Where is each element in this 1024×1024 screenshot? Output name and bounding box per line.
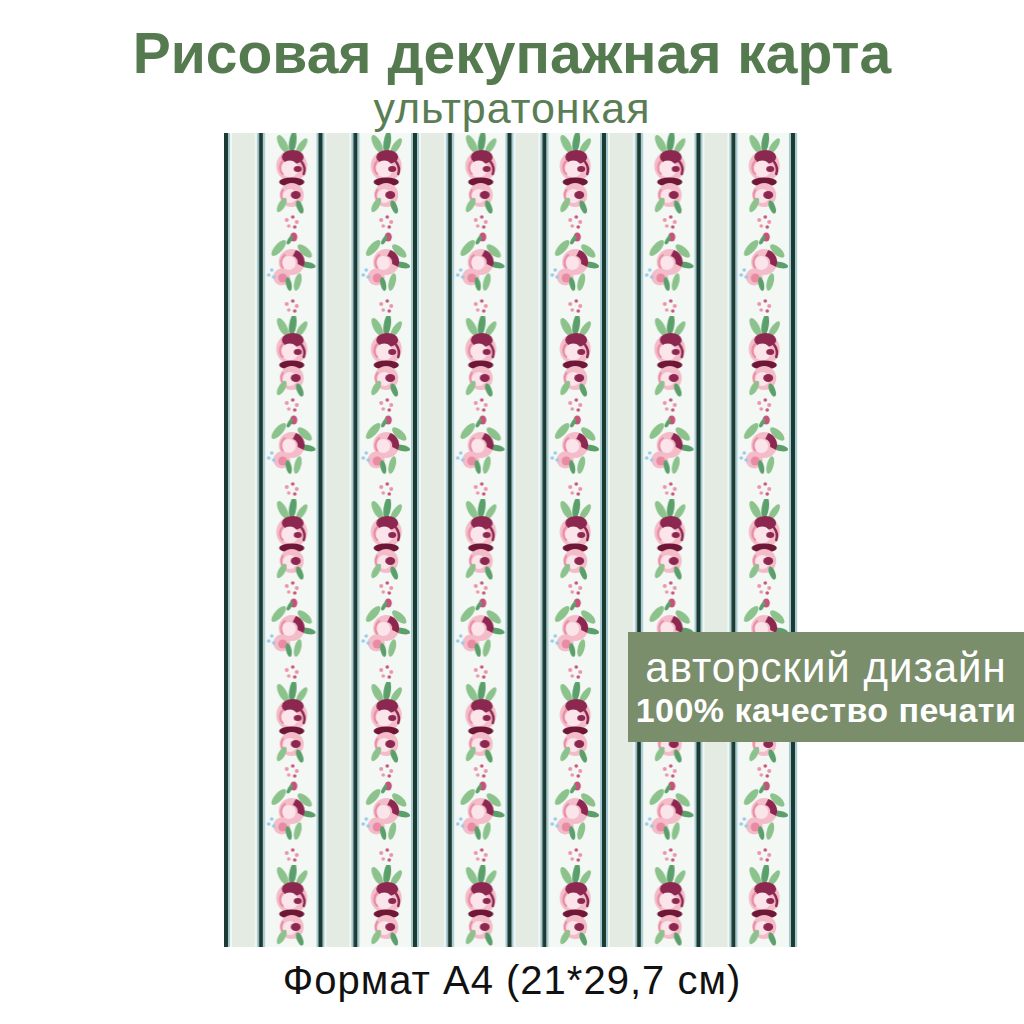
page-subtitle: ультратонкая xyxy=(0,84,1024,133)
quality-badge: авторский дизайн 100% качество печати xyxy=(628,632,1024,742)
badge-design-label: авторский дизайн xyxy=(645,647,1006,689)
page-title: Рисовая декупажная карта xyxy=(0,20,1024,86)
badge-quality-label: 100% качество печати xyxy=(636,693,1017,727)
product-card: Рисовая декупажная карта ультратонкая xyxy=(0,0,1024,1024)
a4-sheet-preview xyxy=(224,133,798,947)
format-label: Формат А4 (21*29,7 см) xyxy=(0,958,1024,1003)
rose-stripe-pattern-image xyxy=(224,133,798,947)
